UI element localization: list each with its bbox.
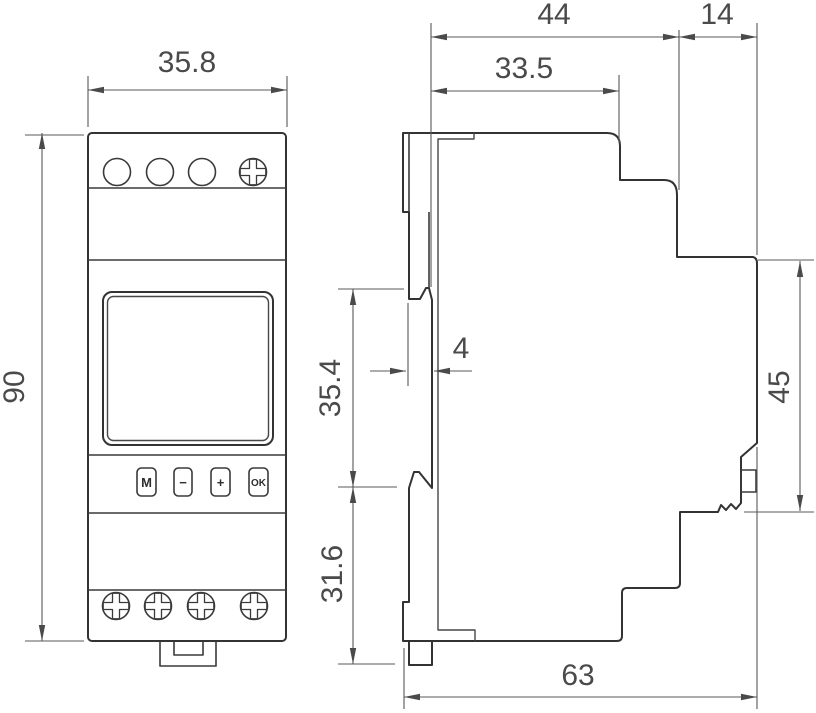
- dimension-arrowhead: [741, 694, 757, 700]
- dimension-drawing: M − + OK 35.8 90: [0, 0, 816, 713]
- screw-icon: [240, 159, 267, 186]
- dim-front-section-height: 45: [744, 260, 814, 512]
- terminal-hole: [147, 159, 174, 186]
- lcd-inner-frame: [108, 297, 269, 441]
- dimension-arrowhead: [663, 34, 679, 40]
- dim-side-top-total: 44: [431, 0, 679, 287]
- dim-front-height: 90: [0, 133, 84, 641]
- dimension-arrowhead: [797, 495, 803, 511]
- dimension-arrowhead: [350, 487, 356, 503]
- dim-label-top-total: 44: [537, 0, 570, 31]
- button-row: M − + OK: [137, 468, 268, 496]
- dim-label-front-cap: 14: [700, 0, 733, 31]
- lcd-outer-frame: [103, 292, 273, 445]
- front-section-dividers: [88, 188, 286, 590]
- dimension-arrowhead: [679, 34, 695, 40]
- terminal-hole: [189, 159, 216, 186]
- dim-label-front-height: 90: [0, 370, 31, 403]
- side-mounting-foot: [409, 641, 432, 665]
- minus-button-label: −: [179, 475, 187, 490]
- dimension-arrowhead: [88, 87, 104, 93]
- screw-icon: [145, 593, 172, 620]
- top-terminal-row: [104, 159, 267, 186]
- side-view: [403, 133, 757, 665]
- dim-label-clip-depth: 4: [453, 332, 470, 365]
- dimension-arrowhead: [271, 87, 287, 93]
- menu-button-label: M: [141, 475, 152, 490]
- front-mounting-foot: [160, 641, 216, 666]
- dimension-arrowhead: [39, 625, 45, 641]
- dim-label-top-body: 33.5: [495, 52, 553, 85]
- dim-label-front-width: 35.8: [158, 46, 216, 79]
- dim-label-lower-section: 31.6: [316, 545, 349, 603]
- screw-icon: [103, 593, 130, 620]
- dimension-arrowhead: [390, 368, 406, 374]
- dimension-arrowhead: [741, 34, 757, 40]
- side-inner-wall-line: [438, 133, 475, 641]
- dim-rail-recess-height: 35.4: [314, 289, 404, 487]
- dim-label-rail-recess: 35.4: [314, 359, 347, 417]
- dimension-arrowhead: [431, 34, 447, 40]
- dim-side-top-body: 33.5: [431, 52, 619, 143]
- screw-icon: [188, 593, 215, 620]
- dimension-arrowhead: [431, 88, 447, 94]
- terminal-hole: [104, 159, 131, 186]
- dimension-arrowhead: [603, 88, 619, 94]
- dim-clip-depth: 4: [370, 303, 472, 386]
- dimension-arrowhead: [350, 648, 356, 664]
- dimension-arrowhead: [434, 368, 450, 374]
- front-panel-clip: [741, 470, 756, 492]
- dimension-arrowhead: [797, 261, 803, 277]
- plus-button-label: +: [217, 475, 225, 490]
- dim-label-total-depth: 63: [561, 659, 594, 692]
- dim-front-width: 35.8: [88, 46, 287, 127]
- dim-total-depth: 63: [404, 447, 757, 709]
- front-view: M − + OK: [88, 133, 286, 666]
- dim-label-front-section-height: 45: [763, 370, 796, 403]
- lcd-display: [103, 292, 273, 445]
- front-outline: [88, 133, 286, 641]
- bottom-terminal-row: [103, 593, 268, 620]
- side-outline: [403, 133, 757, 641]
- ok-button-label: OK: [251, 478, 267, 489]
- dimension-drawing-page: M − + OK 35.8 90: [0, 0, 816, 713]
- dim-lower-section-height: 31.6: [316, 487, 395, 664]
- dimension-arrowhead: [404, 694, 420, 700]
- screw-icon: [241, 593, 268, 620]
- dimension-arrowhead: [350, 289, 356, 305]
- dimension-arrowhead: [350, 471, 356, 487]
